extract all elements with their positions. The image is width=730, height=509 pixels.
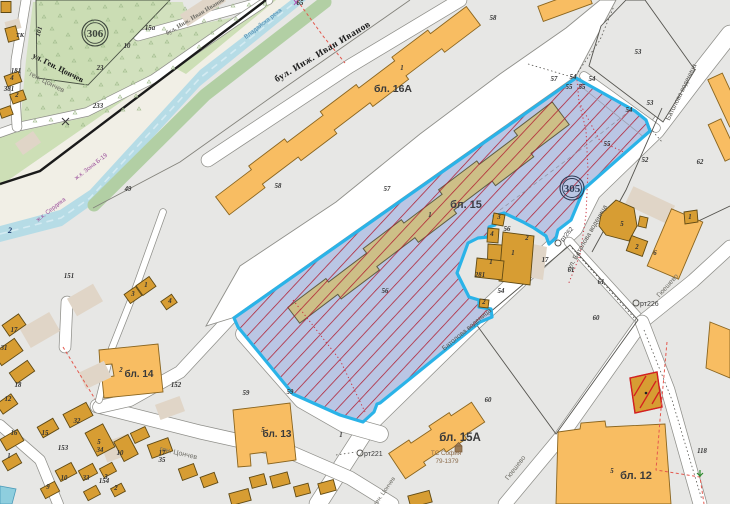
svg-text:бл. 16А: бл. 16А xyxy=(374,83,412,95)
svg-text:55: 55 xyxy=(566,84,573,91)
svg-text:61: 61 xyxy=(598,279,605,286)
svg-text:17: 17 xyxy=(159,450,166,457)
svg-text:1: 1 xyxy=(439,436,442,443)
svg-text:2: 2 xyxy=(634,244,639,251)
svg-text:58: 58 xyxy=(490,15,497,22)
svg-text:бл. 15: бл. 15 xyxy=(450,199,482,211)
svg-text:57: 57 xyxy=(551,76,558,83)
svg-text:52: 52 xyxy=(642,157,649,164)
svg-text:бл. 14: бл. 14 xyxy=(125,368,154,380)
svg-text:1: 1 xyxy=(511,250,514,257)
svg-text:1: 1 xyxy=(489,259,492,266)
svg-text:рт226: рт226 xyxy=(640,301,659,308)
svg-text:55: 55 xyxy=(579,84,586,91)
svg-text:181: 181 xyxy=(11,68,21,75)
svg-text:61: 61 xyxy=(568,267,575,274)
svg-text:16: 16 xyxy=(11,430,18,437)
svg-text:60: 60 xyxy=(485,397,492,404)
svg-text:62: 62 xyxy=(697,159,704,166)
svg-text:53: 53 xyxy=(635,49,642,56)
svg-text:32: 32 xyxy=(73,418,81,425)
svg-text:2: 2 xyxy=(524,235,529,242)
svg-text:1: 1 xyxy=(428,212,431,219)
svg-text:18: 18 xyxy=(15,382,22,389)
svg-text:33: 33 xyxy=(82,475,90,482)
svg-text:79-1379: 79-1379 xyxy=(435,458,459,465)
svg-text:55: 55 xyxy=(604,141,611,148)
svg-text:рт221: рт221 xyxy=(364,451,383,458)
svg-text:54: 54 xyxy=(589,76,596,83)
svg-text:2: 2 xyxy=(118,367,123,374)
svg-text:60: 60 xyxy=(593,315,600,322)
svg-text:151: 151 xyxy=(64,273,74,280)
svg-text:53: 53 xyxy=(647,100,654,107)
svg-text:10: 10 xyxy=(117,450,124,457)
svg-text:17: 17 xyxy=(11,327,18,334)
svg-text:65: 65 xyxy=(297,0,304,7)
svg-text:10: 10 xyxy=(61,475,68,482)
svg-text:ТК: ТК xyxy=(16,32,25,39)
svg-text:1: 1 xyxy=(7,453,10,460)
svg-text:49: 49 xyxy=(124,186,132,193)
svg-text:34: 34 xyxy=(96,447,104,454)
svg-text:4: 4 xyxy=(9,75,14,82)
svg-text:57: 57 xyxy=(384,186,391,193)
svg-text:2: 2 xyxy=(113,485,118,492)
svg-text:3: 3 xyxy=(103,474,108,481)
svg-text:6: 6 xyxy=(653,250,657,257)
svg-text:152: 152 xyxy=(171,382,182,389)
svg-text:3: 3 xyxy=(130,291,135,298)
svg-text:5: 5 xyxy=(620,221,624,228)
svg-text:1: 1 xyxy=(688,214,691,221)
svg-text:305: 305 xyxy=(564,183,581,195)
svg-text:15: 15 xyxy=(42,430,49,437)
svg-text:59: 59 xyxy=(287,389,294,396)
svg-text:31: 31 xyxy=(0,345,7,352)
svg-text:4: 4 xyxy=(489,231,494,238)
svg-text:59: 59 xyxy=(243,390,250,397)
svg-text:бл. 15А: бл. 15А xyxy=(439,432,481,444)
svg-text:12: 12 xyxy=(5,396,12,403)
svg-text:153: 153 xyxy=(58,445,69,452)
svg-text:15а: 15а xyxy=(145,25,156,32)
svg-text:9: 9 xyxy=(46,484,50,491)
svg-text:35: 35 xyxy=(158,457,166,464)
svg-text:10: 10 xyxy=(124,43,131,50)
svg-text:4: 4 xyxy=(167,298,172,305)
svg-text:1: 1 xyxy=(400,65,403,72)
svg-text:118: 118 xyxy=(697,448,707,455)
svg-text:2: 2 xyxy=(7,226,12,235)
svg-text:54: 54 xyxy=(570,74,577,81)
svg-text:бл. 12: бл. 12 xyxy=(620,470,652,482)
svg-text:5: 5 xyxy=(610,468,614,475)
svg-text:1: 1 xyxy=(339,432,342,439)
svg-text:5: 5 xyxy=(261,427,265,434)
svg-text:58: 58 xyxy=(275,183,282,190)
svg-text:54: 54 xyxy=(498,288,505,295)
svg-text:2: 2 xyxy=(14,92,19,99)
svg-text:3: 3 xyxy=(496,214,501,221)
svg-text:2: 2 xyxy=(481,299,486,306)
svg-text:56: 56 xyxy=(504,226,511,233)
svg-text:17: 17 xyxy=(542,257,549,264)
svg-text:5: 5 xyxy=(97,439,101,446)
svg-text:56: 56 xyxy=(382,288,389,295)
svg-text:381: 381 xyxy=(3,86,14,93)
svg-text:306: 306 xyxy=(87,28,104,40)
svg-text:бл. 13: бл. 13 xyxy=(263,428,292,440)
svg-text:233: 233 xyxy=(92,103,104,110)
svg-text:281: 281 xyxy=(474,272,485,279)
svg-text:1: 1 xyxy=(144,282,147,289)
svg-text:54: 54 xyxy=(626,107,633,114)
svg-text:23: 23 xyxy=(96,65,104,72)
